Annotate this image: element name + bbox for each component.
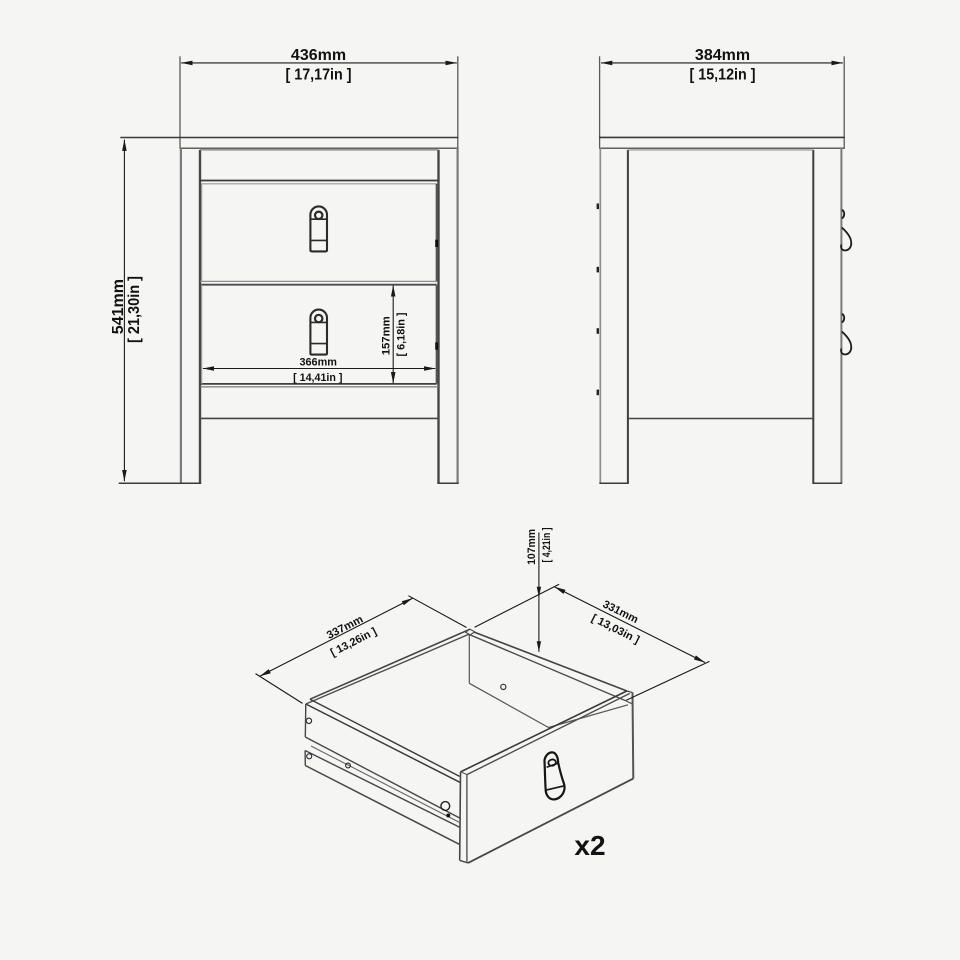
svg-text:157mm: 157mm <box>381 316 393 355</box>
svg-text:[ 17,17in ]: [ 17,17in ] <box>286 67 352 84</box>
svg-text:366mm: 366mm <box>299 357 337 369</box>
svg-text:[ 14,41in ]: [ 14,41in ] <box>293 372 343 384</box>
svg-text:436mm: 436mm <box>291 47 346 64</box>
svg-text:541mm: 541mm <box>110 279 127 334</box>
svg-text:384mm: 384mm <box>695 47 750 64</box>
svg-text:107mm: 107mm <box>526 529 538 565</box>
svg-text:[ 6,18in ]: [ 6,18in ] <box>395 312 407 356</box>
svg-text:x2: x2 <box>574 830 605 861</box>
svg-text:[ 15,12in ]: [ 15,12in ] <box>690 67 756 84</box>
svg-text:[ 4,21in ]: [ 4,21in ] <box>541 527 553 562</box>
svg-text:[ 21,30in ]: [ 21,30in ] <box>126 276 143 343</box>
